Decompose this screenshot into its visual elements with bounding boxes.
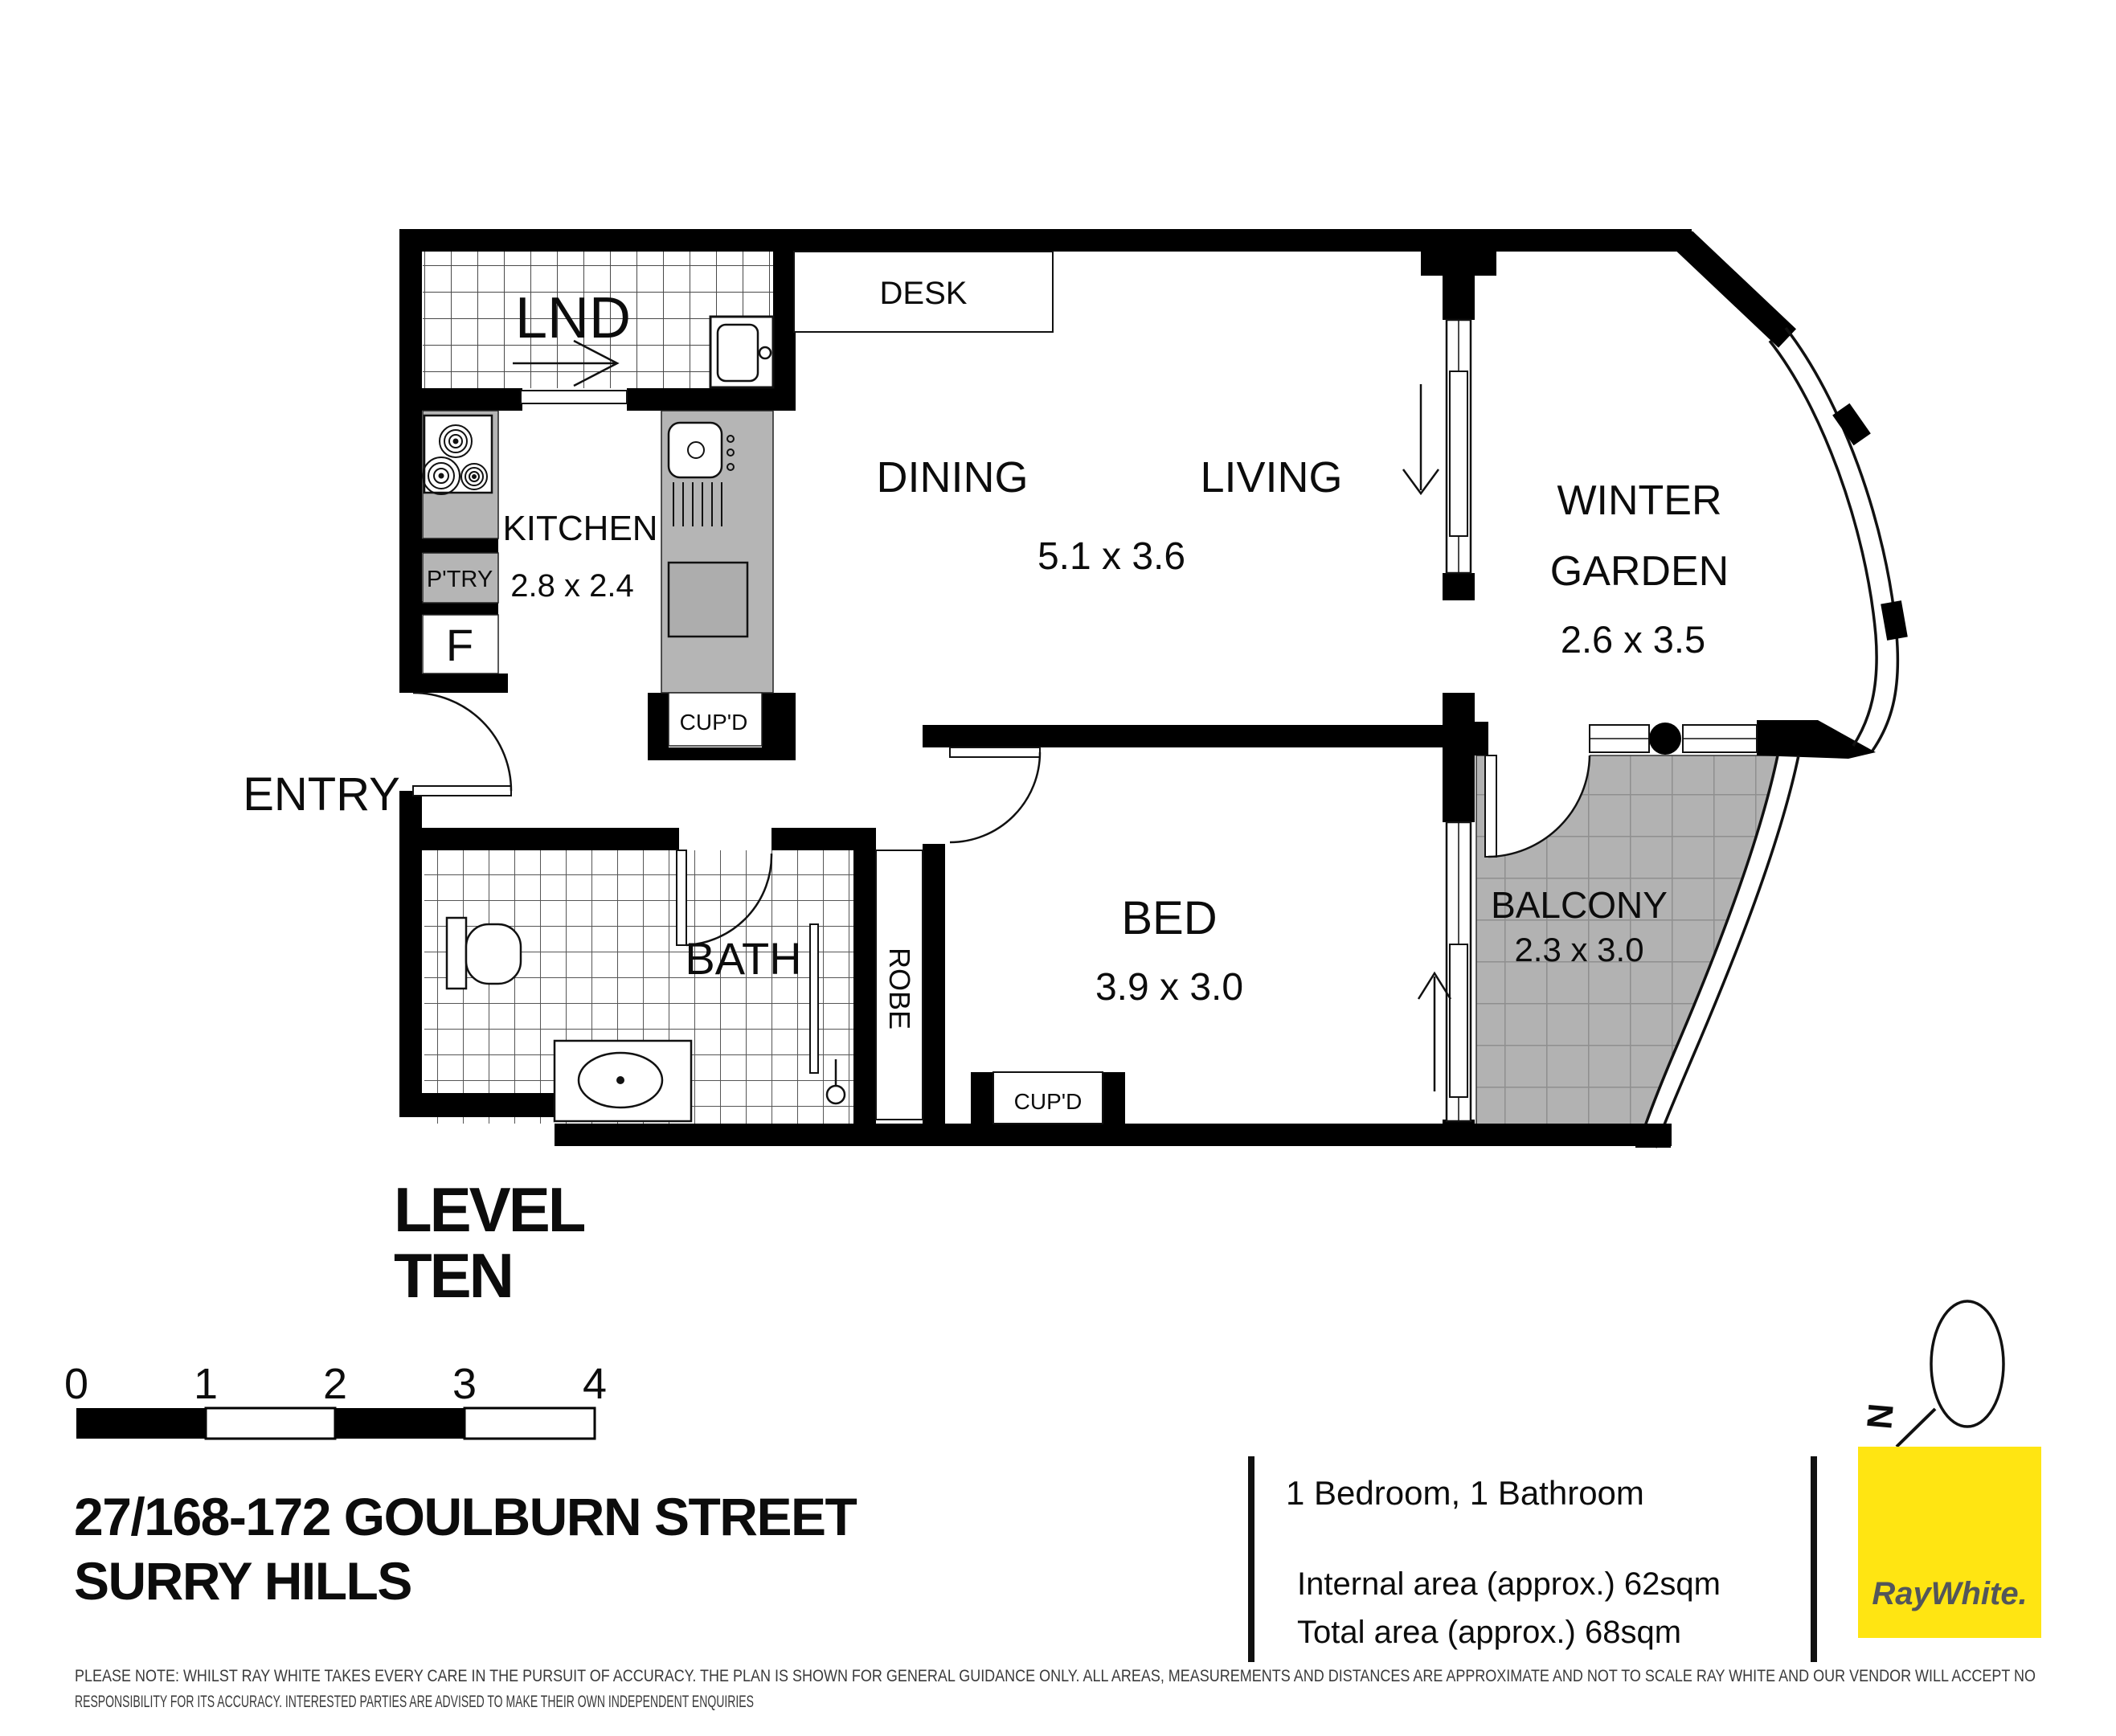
label-robe: ROBE	[883, 948, 916, 1030]
label-dining-living-dims: 5.1 x 3.6	[1038, 535, 1185, 578]
raywhite-logo: RayWhite.	[1858, 1447, 2041, 1638]
summary-total-area: Total area (approx.) 68sqm	[1297, 1615, 1681, 1650]
scale-tick-4: 4	[583, 1360, 607, 1408]
disclaimer: PLEASE NOTE: WHILST RAY WHITE TAKES EVER…	[75, 1666, 2036, 1711]
scale-tick-1: 1	[194, 1360, 218, 1408]
label-bed-cupd: CUP'D	[1014, 1089, 1083, 1114]
wall-bath-step	[399, 1093, 560, 1117]
label-bed: BED	[1121, 892, 1217, 944]
wall-bath-right	[853, 828, 876, 1124]
address-line1: 27/168-172 GOULBURN STREET	[74, 1487, 857, 1546]
summary-bed-bath: 1 Bedroom, 1 Bathroom	[1286, 1474, 1644, 1512]
wall-kitchen-divider-1	[422, 538, 498, 553]
mullion-2	[1881, 600, 1908, 641]
bed-door	[950, 747, 1040, 842]
wall-partition-5	[1443, 1120, 1475, 1146]
label-pantry: P'TRY	[427, 567, 493, 592]
level-label: LEVEL TEN	[394, 1174, 585, 1311]
mullion-1	[1832, 403, 1871, 446]
scale-seg-2	[206, 1408, 335, 1439]
floorplan-page: LND DESK DINING LIVING 5.1 x 3.6 KITCHEN…	[0, 0, 2116, 1736]
wall-lnd-right	[773, 252, 796, 411]
vanity-icon	[555, 1041, 691, 1121]
label-bath: BATH	[685, 933, 801, 984]
label-lnd: LND	[515, 286, 631, 350]
divider-line-2	[1811, 1456, 1817, 1662]
label-living: LIVING	[1200, 453, 1342, 502]
kitchen-cabinet-box	[669, 563, 747, 637]
label-kitchen: KITCHEN	[502, 509, 657, 548]
scale-seg-3	[335, 1408, 465, 1439]
window-divider-2	[1683, 725, 1757, 752]
label-wintergarden-2: GARDEN	[1550, 548, 1729, 595]
wall-left-stub	[399, 791, 422, 829]
wall-kcupd-bottom	[648, 747, 796, 760]
wall-bed-top	[923, 725, 1447, 747]
disclaimer-line1: PLEASE NOTE: WHILST RAY WHITE TAKES EVER…	[75, 1666, 2036, 1685]
column-dot	[1649, 723, 1681, 755]
wall-bath-top-left	[399, 828, 679, 850]
wall-left-upper	[399, 229, 422, 693]
compass-circle-icon	[1931, 1301, 2003, 1427]
mullion-3	[1635, 1124, 1671, 1148]
window-bed-balcony	[1447, 822, 1471, 1121]
label-bed-dims: 3.9 x 3.0	[1095, 966, 1243, 1009]
divider-line-1	[1248, 1456, 1254, 1662]
summary-internal-area: Internal area (approx.) 62sqm	[1297, 1566, 1721, 1602]
address-line2: SURRY HILLS	[74, 1551, 411, 1611]
label-kitchen-cupd: CUP'D	[680, 710, 748, 735]
wall-bedcupd-left	[971, 1072, 993, 1124]
disclaimer-line2: RESPONSIBILITY FOR ITS ACCURACY. INTERES…	[75, 1692, 754, 1711]
wall-below-fridge	[399, 674, 508, 693]
wall-partition-3	[1443, 693, 1475, 755]
wall-partition-2	[1443, 573, 1475, 600]
scale-tick-3: 3	[452, 1360, 477, 1408]
compass-n-label: N	[1860, 1402, 1901, 1431]
label-kitchen-dims: 2.8 x 2.4	[510, 568, 633, 604]
wall-lnd-bottom-left	[422, 388, 522, 411]
window-divider-1	[1590, 725, 1649, 752]
level-line1: LEVEL	[394, 1174, 585, 1245]
label-wintergarden-1: WINTER	[1557, 477, 1721, 524]
label-balcony-dims: 2.3 x 3.0	[1514, 931, 1643, 968]
floor-finishes	[423, 252, 1778, 1143]
cooktop-icon	[423, 416, 492, 494]
address-block: 27/168-172 GOULBURN STREET SURRY HILLS	[74, 1487, 857, 1611]
wall-partition-4	[1443, 755, 1475, 822]
summary-panel: 1 Bedroom, 1 Bathroom Internal area (app…	[1248, 1456, 1817, 1662]
laundry-tub-icon	[710, 317, 773, 387]
label-desk: DESK	[880, 276, 968, 311]
wall-bedcupd-right	[1103, 1072, 1125, 1124]
entry-door	[413, 693, 511, 796]
scale-tick-2: 2	[323, 1360, 347, 1408]
north-compass: N	[1860, 1301, 2003, 1447]
scale-tick-0: 0	[64, 1360, 88, 1408]
compass-needle-icon	[1897, 1409, 1935, 1447]
wall-partition-1	[1443, 252, 1475, 320]
scale-bar: 0 1 2 3 4	[64, 1360, 607, 1439]
wall-top	[399, 229, 1692, 252]
wall-diagonal-corner	[1684, 240, 1787, 338]
wall-bath-left	[399, 850, 422, 1095]
wall-bed-left	[923, 844, 945, 1124]
label-entry: ENTRY	[243, 768, 400, 821]
scale-seg-4	[465, 1408, 595, 1439]
floorplan-canvas: LND DESK DINING LIVING 5.1 x 3.6 KITCHEN…	[0, 0, 2116, 1736]
window-living-wintergarden	[1447, 320, 1471, 573]
raywhite-logo-text: RayWhite.	[1872, 1576, 2027, 1611]
wintergarden-down-arrow-icon	[1403, 384, 1439, 493]
level-line2: TEN	[394, 1240, 512, 1311]
wall-divider-left	[1471, 722, 1488, 755]
facade-inner-line	[1770, 341, 1877, 746]
lnd-door-threshold	[521, 391, 627, 403]
label-dining: DINING	[877, 453, 1029, 502]
label-balcony: BALCONY	[1491, 884, 1668, 926]
scale-seg-1	[76, 1408, 206, 1439]
toilet-icon	[447, 918, 521, 989]
wall-lnd-bottom-right	[627, 388, 773, 411]
wall-bottom	[555, 1124, 1672, 1146]
label-wintergarden-dims: 2.6 x 3.5	[1561, 618, 1705, 661]
label-fridge: F	[446, 620, 473, 670]
